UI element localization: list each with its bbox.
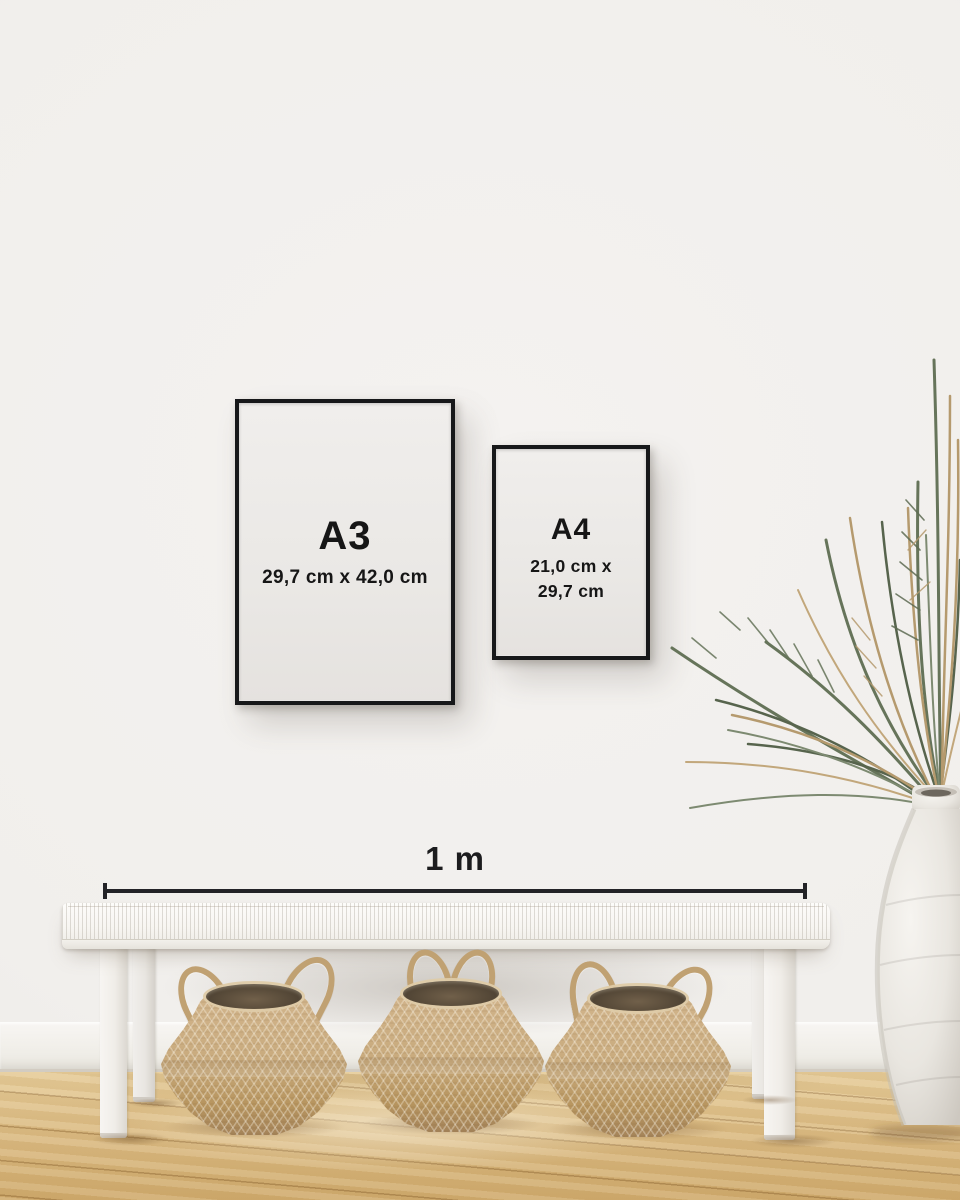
basket-opening <box>590 986 687 1011</box>
frame-a4-size: 21,0 cm x 29,7 cm <box>530 554 612 605</box>
seagrass-basket-1 <box>161 959 347 1135</box>
scale-bar-line <box>103 889 807 893</box>
scale-bar-tick-left <box>103 883 107 899</box>
scale-bar-label: 1 m <box>103 842 807 875</box>
bench-leg-right-front <box>764 948 795 1140</box>
scale-bar: 1 m <box>103 842 807 893</box>
basket-body <box>358 993 544 1132</box>
bench-leg-left-rear <box>133 948 155 1102</box>
basket-opening <box>206 984 303 1009</box>
seagrass-basket-3 <box>545 961 731 1137</box>
room-scene: A3 29,7 cm x 42,0 cm A4 21,0 cm x 29,7 c… <box>0 0 960 1200</box>
vase-floor-shadow <box>870 1125 960 1141</box>
frame-a3-mat: A3 29,7 cm x 42,0 cm <box>239 403 451 701</box>
bench-leg-shadow <box>742 1095 798 1105</box>
frame-a4-size-line2: 29,7 cm <box>530 579 612 604</box>
frame-a3: A3 29,7 cm x 42,0 cm <box>235 399 455 705</box>
dried-palm-plant <box>620 300 960 820</box>
basket-opening <box>403 981 500 1006</box>
frame-a3-label: A3 <box>318 516 371 556</box>
frame-a4-size-line1: 21,0 cm x <box>530 554 612 579</box>
floor-vase <box>858 785 960 1145</box>
scale-bar-tick-right <box>803 883 807 899</box>
seagrass-basket-2 <box>358 956 544 1132</box>
frame-a3-size: 29,7 cm x 42,0 cm <box>262 567 428 589</box>
bench-leg-shadow <box>750 1134 836 1148</box>
bench-leg-left-front <box>100 948 127 1138</box>
frame-a4-label: A4 <box>551 515 591 545</box>
bench-leg-shadow <box>92 1132 170 1146</box>
bench-seat <box>62 903 830 949</box>
